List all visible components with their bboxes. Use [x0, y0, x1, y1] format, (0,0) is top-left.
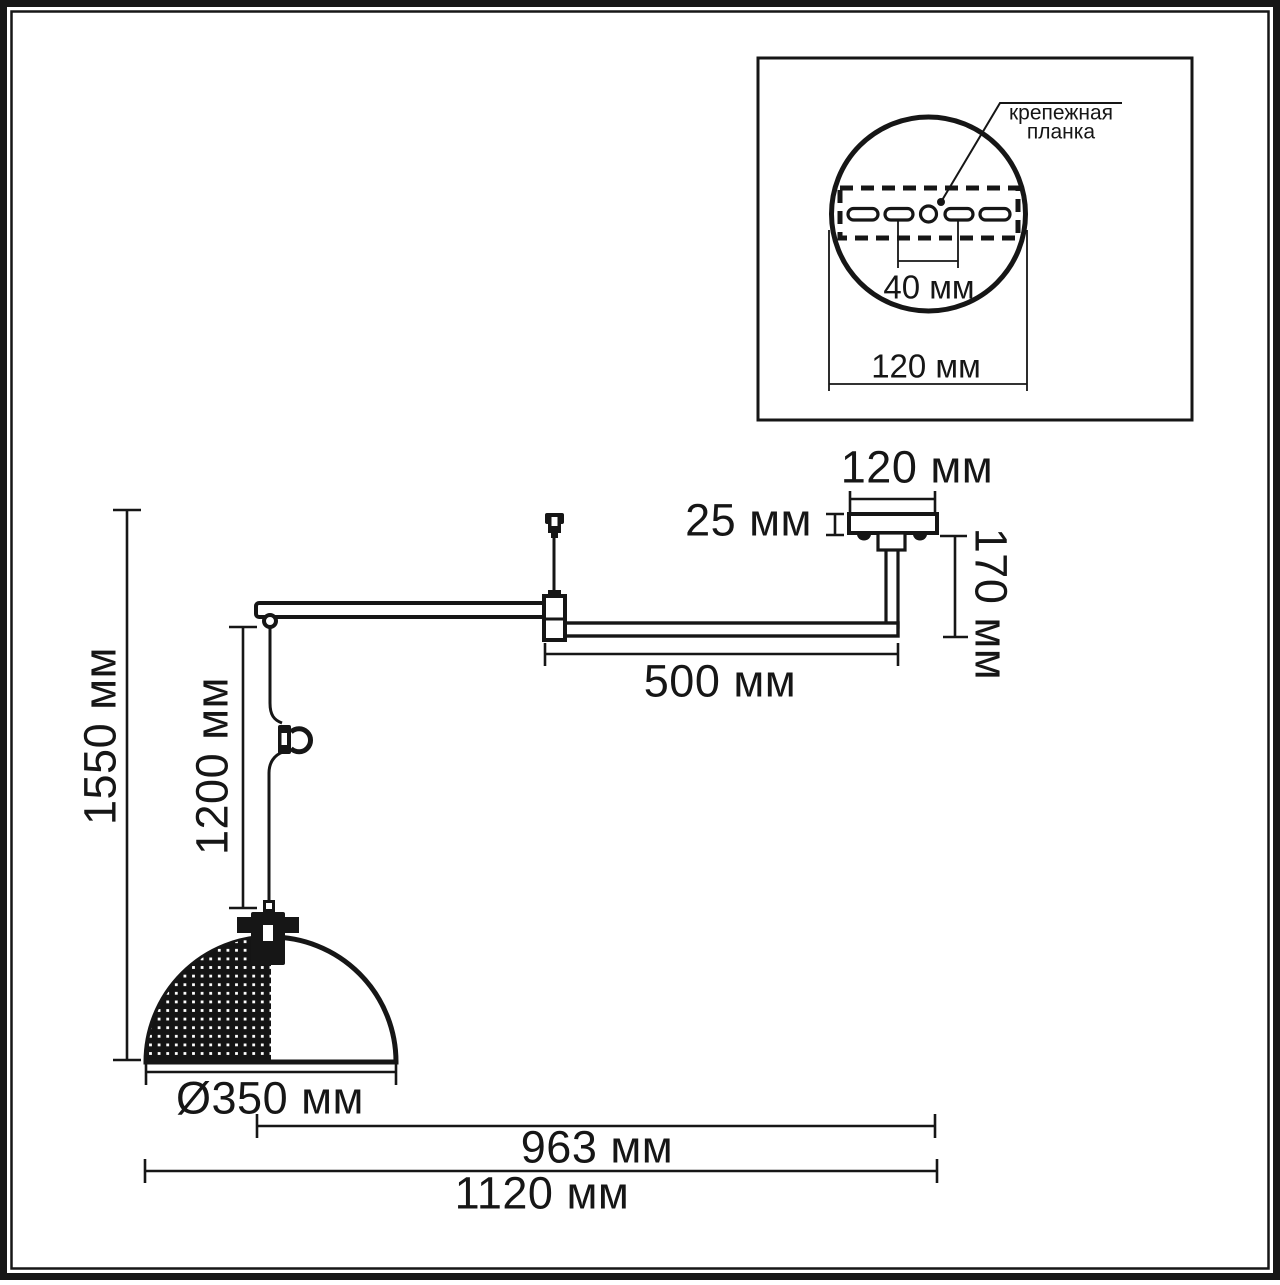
- swing-arm-upper: [256, 603, 545, 617]
- dim-stem-drop-label: 170 мм: [966, 528, 1017, 680]
- dim-canopy-width-label: 120 мм: [841, 442, 993, 493]
- cord-hanger-ring: [264, 615, 276, 627]
- lamp-dimension-drawing: крепежная планка 40 мм 120 мм: [0, 0, 1280, 1280]
- dim-total-height-label: 1550 мм: [75, 647, 126, 825]
- dim-plate-width-label: 120 мм: [871, 348, 981, 385]
- dim-cord-length-label: 1200 мм: [187, 677, 238, 855]
- dim-canopy-height-label: 25 мм: [685, 495, 812, 546]
- swing-arm-lower: [564, 623, 898, 636]
- mounting-slots: [848, 206, 1010, 222]
- center-hole: [921, 206, 937, 222]
- ceiling-stem: [886, 549, 898, 627]
- diagram-canvas: крепежная планка 40 мм 120 мм: [0, 0, 1280, 1280]
- dim-shade-diameter-label: Ø350 мм: [176, 1073, 364, 1124]
- dim-reach-to-center-label: 963 мм: [521, 1122, 673, 1173]
- dim-arm-length-label: 500 мм: [644, 656, 796, 707]
- inset-detail-panel: крепежная планка 40 мм 120 мм: [758, 58, 1192, 420]
- mounting-plate-callout-line2: планка: [1027, 121, 1096, 144]
- pivot-joint: [544, 590, 565, 640]
- dim-total-width-label: 1120 мм: [455, 1168, 630, 1219]
- dim-slot-spacing-label: 40 мм: [883, 269, 974, 306]
